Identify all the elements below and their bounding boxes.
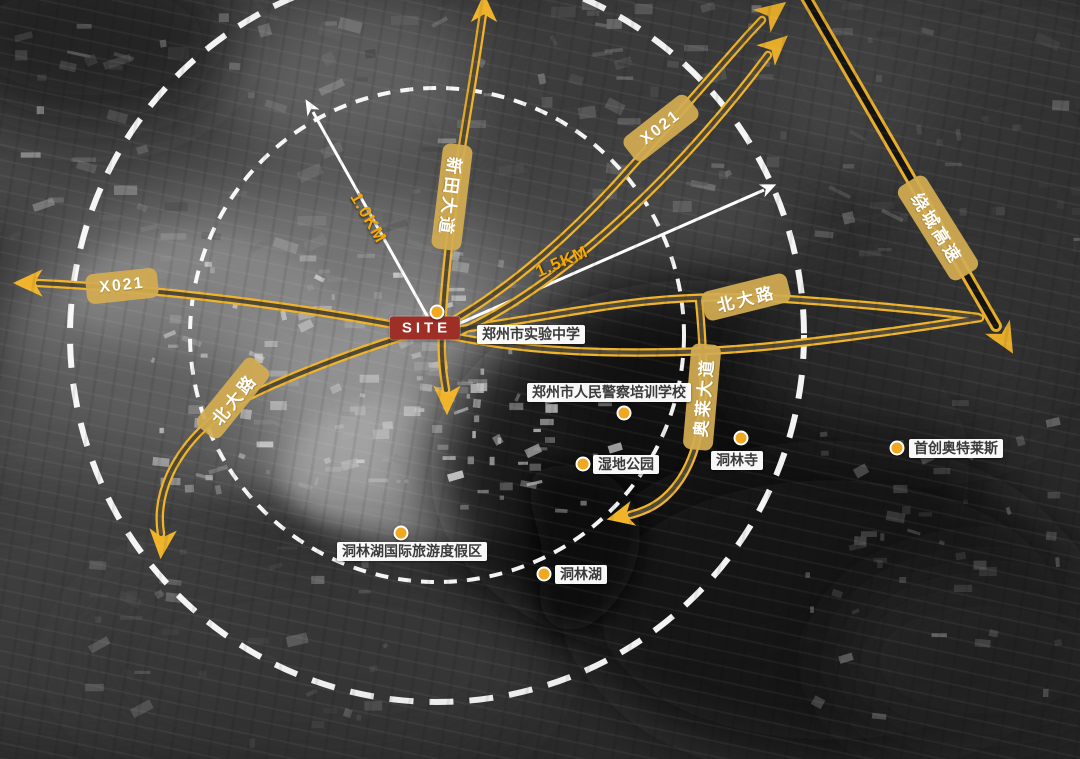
poi-label: 洞林湖国际旅游度假区 <box>337 542 487 561</box>
site-analysis-map: 1.0KM 1.5KM X021 北大路 新田大道 X021 北大路 绕城高速 … <box>0 0 1080 759</box>
poi-dot-icon <box>430 305 445 320</box>
road-label-x021-northeast: X021 <box>620 92 702 165</box>
distance-label-inner: 1.0KM <box>346 189 391 247</box>
poi-dot-icon <box>537 567 552 582</box>
road-label-xintian-avenue: 新田大道 <box>431 143 474 252</box>
poi-dot-icon <box>734 431 749 446</box>
road-label-beida-road-east: 北大路 <box>700 272 793 322</box>
site-marker: SITE <box>390 317 460 340</box>
poi-label: 首创奥特莱斯 <box>909 439 1003 458</box>
poi-label: 郑州市实验中学 <box>477 325 585 344</box>
poi-label: 洞林湖 <box>555 565 607 584</box>
road-label-x021-west: X021 <box>85 267 160 304</box>
poi-dot-icon <box>890 441 905 456</box>
road-label-beida-road-west: 北大路 <box>194 354 273 441</box>
poi-label: 洞林寺 <box>711 451 763 470</box>
poi-label: 湿地公园 <box>593 455 659 474</box>
poi-label: 郑州市人民警察培训学校 <box>527 383 691 402</box>
road-label-raocheng-expressway: 绕城高速 <box>895 173 981 284</box>
distance-label-outer: 1.5KM <box>533 242 592 282</box>
annotation-layer: 1.0KM 1.5KM X021 北大路 新田大道 X021 北大路 绕城高速 … <box>0 0 1080 759</box>
poi-dot-icon <box>394 526 409 541</box>
poi-dot-icon <box>576 457 591 472</box>
poi-dot-icon <box>617 406 632 421</box>
